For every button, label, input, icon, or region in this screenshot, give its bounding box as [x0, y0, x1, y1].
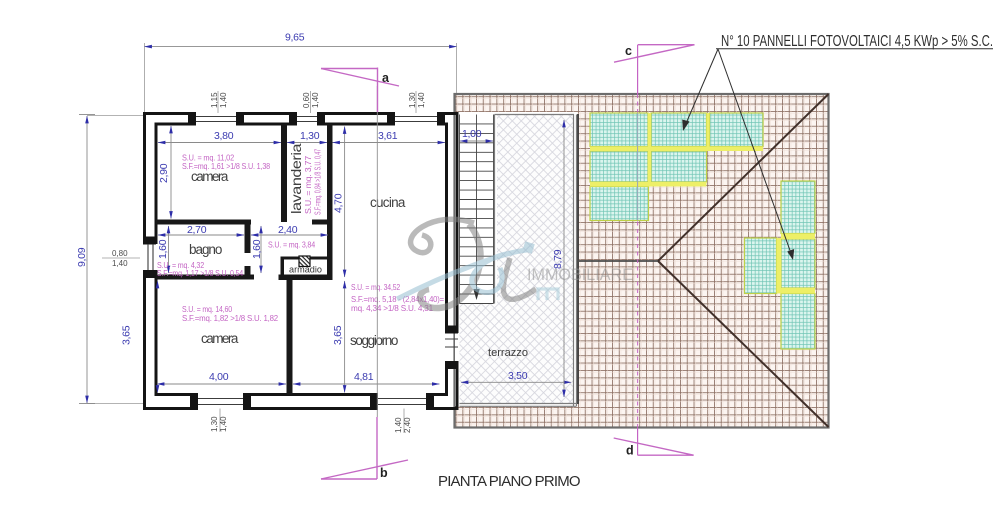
- svg-text:1,40: 1,40: [219, 92, 228, 108]
- svg-text:0,60: 0,60: [302, 92, 311, 108]
- svg-text:S.F.=mq. 0,84 >1/8 S.U. 0,47: S.F.=mq. 0,84 >1/8 S.U. 0,47: [313, 149, 323, 215]
- svg-text:1,60: 1,60: [157, 239, 169, 259]
- svg-text:1,00: 1,00: [462, 128, 482, 140]
- svg-text:S.F.=mq. 1,82 >1/8 S.U. 1,82: S.F.=mq. 1,82 >1/8 S.U. 1,82: [182, 313, 278, 323]
- svg-text:S.F.=mq. 1,61 >1/8 S.U. 1,38: S.F.=mq. 1,61 >1/8 S.U. 1,38: [182, 161, 270, 171]
- svg-text:1,15: 1,15: [210, 92, 219, 108]
- svg-text:camera: camera: [201, 331, 239, 346]
- svg-text:d: d: [626, 444, 634, 458]
- svg-text:N° 10 PANNELLI FOTOVOLTAICI 4,: N° 10 PANNELLI FOTOVOLTAICI 4,5 KWp > 5%…: [721, 33, 993, 50]
- svg-text:2,40: 2,40: [403, 417, 412, 433]
- svg-text:1,30: 1,30: [210, 416, 219, 432]
- svg-text:3,50: 3,50: [508, 370, 528, 382]
- svg-text:bagno: bagno: [189, 242, 222, 257]
- svg-text:a: a: [382, 71, 390, 85]
- svg-text:3,80: 3,80: [214, 130, 234, 142]
- svg-text:soggiorno: soggiorno: [350, 333, 398, 348]
- svg-text:4,81: 4,81: [354, 371, 374, 383]
- svg-text:camera: camera: [191, 169, 229, 184]
- svg-text:1,60: 1,60: [251, 239, 263, 259]
- svg-text:b: b: [380, 466, 388, 480]
- svg-text:1,30: 1,30: [300, 130, 320, 142]
- svg-text:S.F.=mq. 1,17 >1/8 S.U. 0,54: S.F.=mq. 1,17 >1/8 S.U. 0,54: [157, 268, 243, 278]
- svg-text:c: c: [625, 44, 632, 58]
- svg-text:cucina: cucina: [370, 195, 406, 210]
- svg-text:1,30: 1,30: [408, 92, 417, 108]
- svg-text:1,40: 1,40: [219, 416, 228, 432]
- svg-text:4,00: 4,00: [209, 371, 229, 383]
- svg-text:1,40: 1,40: [417, 92, 426, 108]
- svg-text:3,65: 3,65: [121, 325, 133, 345]
- svg-text:lavanderia: lavanderia: [289, 143, 304, 214]
- svg-text:S.U. = mq. 3,84: S.U. = mq. 3,84: [268, 240, 315, 250]
- svg-text:3,65: 3,65: [332, 325, 344, 345]
- svg-text:2,40: 2,40: [278, 224, 298, 236]
- svg-text:S.U. = mq. 34,52: S.U. = mq. 34,52: [351, 282, 400, 292]
- svg-text:0,80: 0,80: [112, 249, 128, 258]
- svg-text:1,40: 1,40: [394, 417, 403, 433]
- svg-text:terrazzo: terrazzo: [488, 347, 528, 359]
- svg-text:3,61: 3,61: [378, 130, 398, 142]
- svg-text:2,90: 2,90: [158, 163, 170, 183]
- svg-text:9,09: 9,09: [76, 247, 88, 267]
- svg-text:2,70: 2,70: [187, 224, 207, 236]
- svg-text:S.U. = mq. 3,77: S.U. = mq. 3,77: [303, 156, 313, 214]
- svg-text:IMMOBILIARE: IMMOBILIARE: [527, 266, 633, 284]
- svg-text:1,40: 1,40: [112, 259, 128, 268]
- svg-text:armadio: armadio: [289, 265, 322, 276]
- svg-text:PIANTA PIANO PRIMO: PIANTA PIANO PRIMO: [438, 473, 581, 490]
- svg-text:4,70: 4,70: [333, 193, 345, 213]
- svg-text:9,65: 9,65: [285, 32, 305, 44]
- svg-text:1,40: 1,40: [311, 92, 320, 108]
